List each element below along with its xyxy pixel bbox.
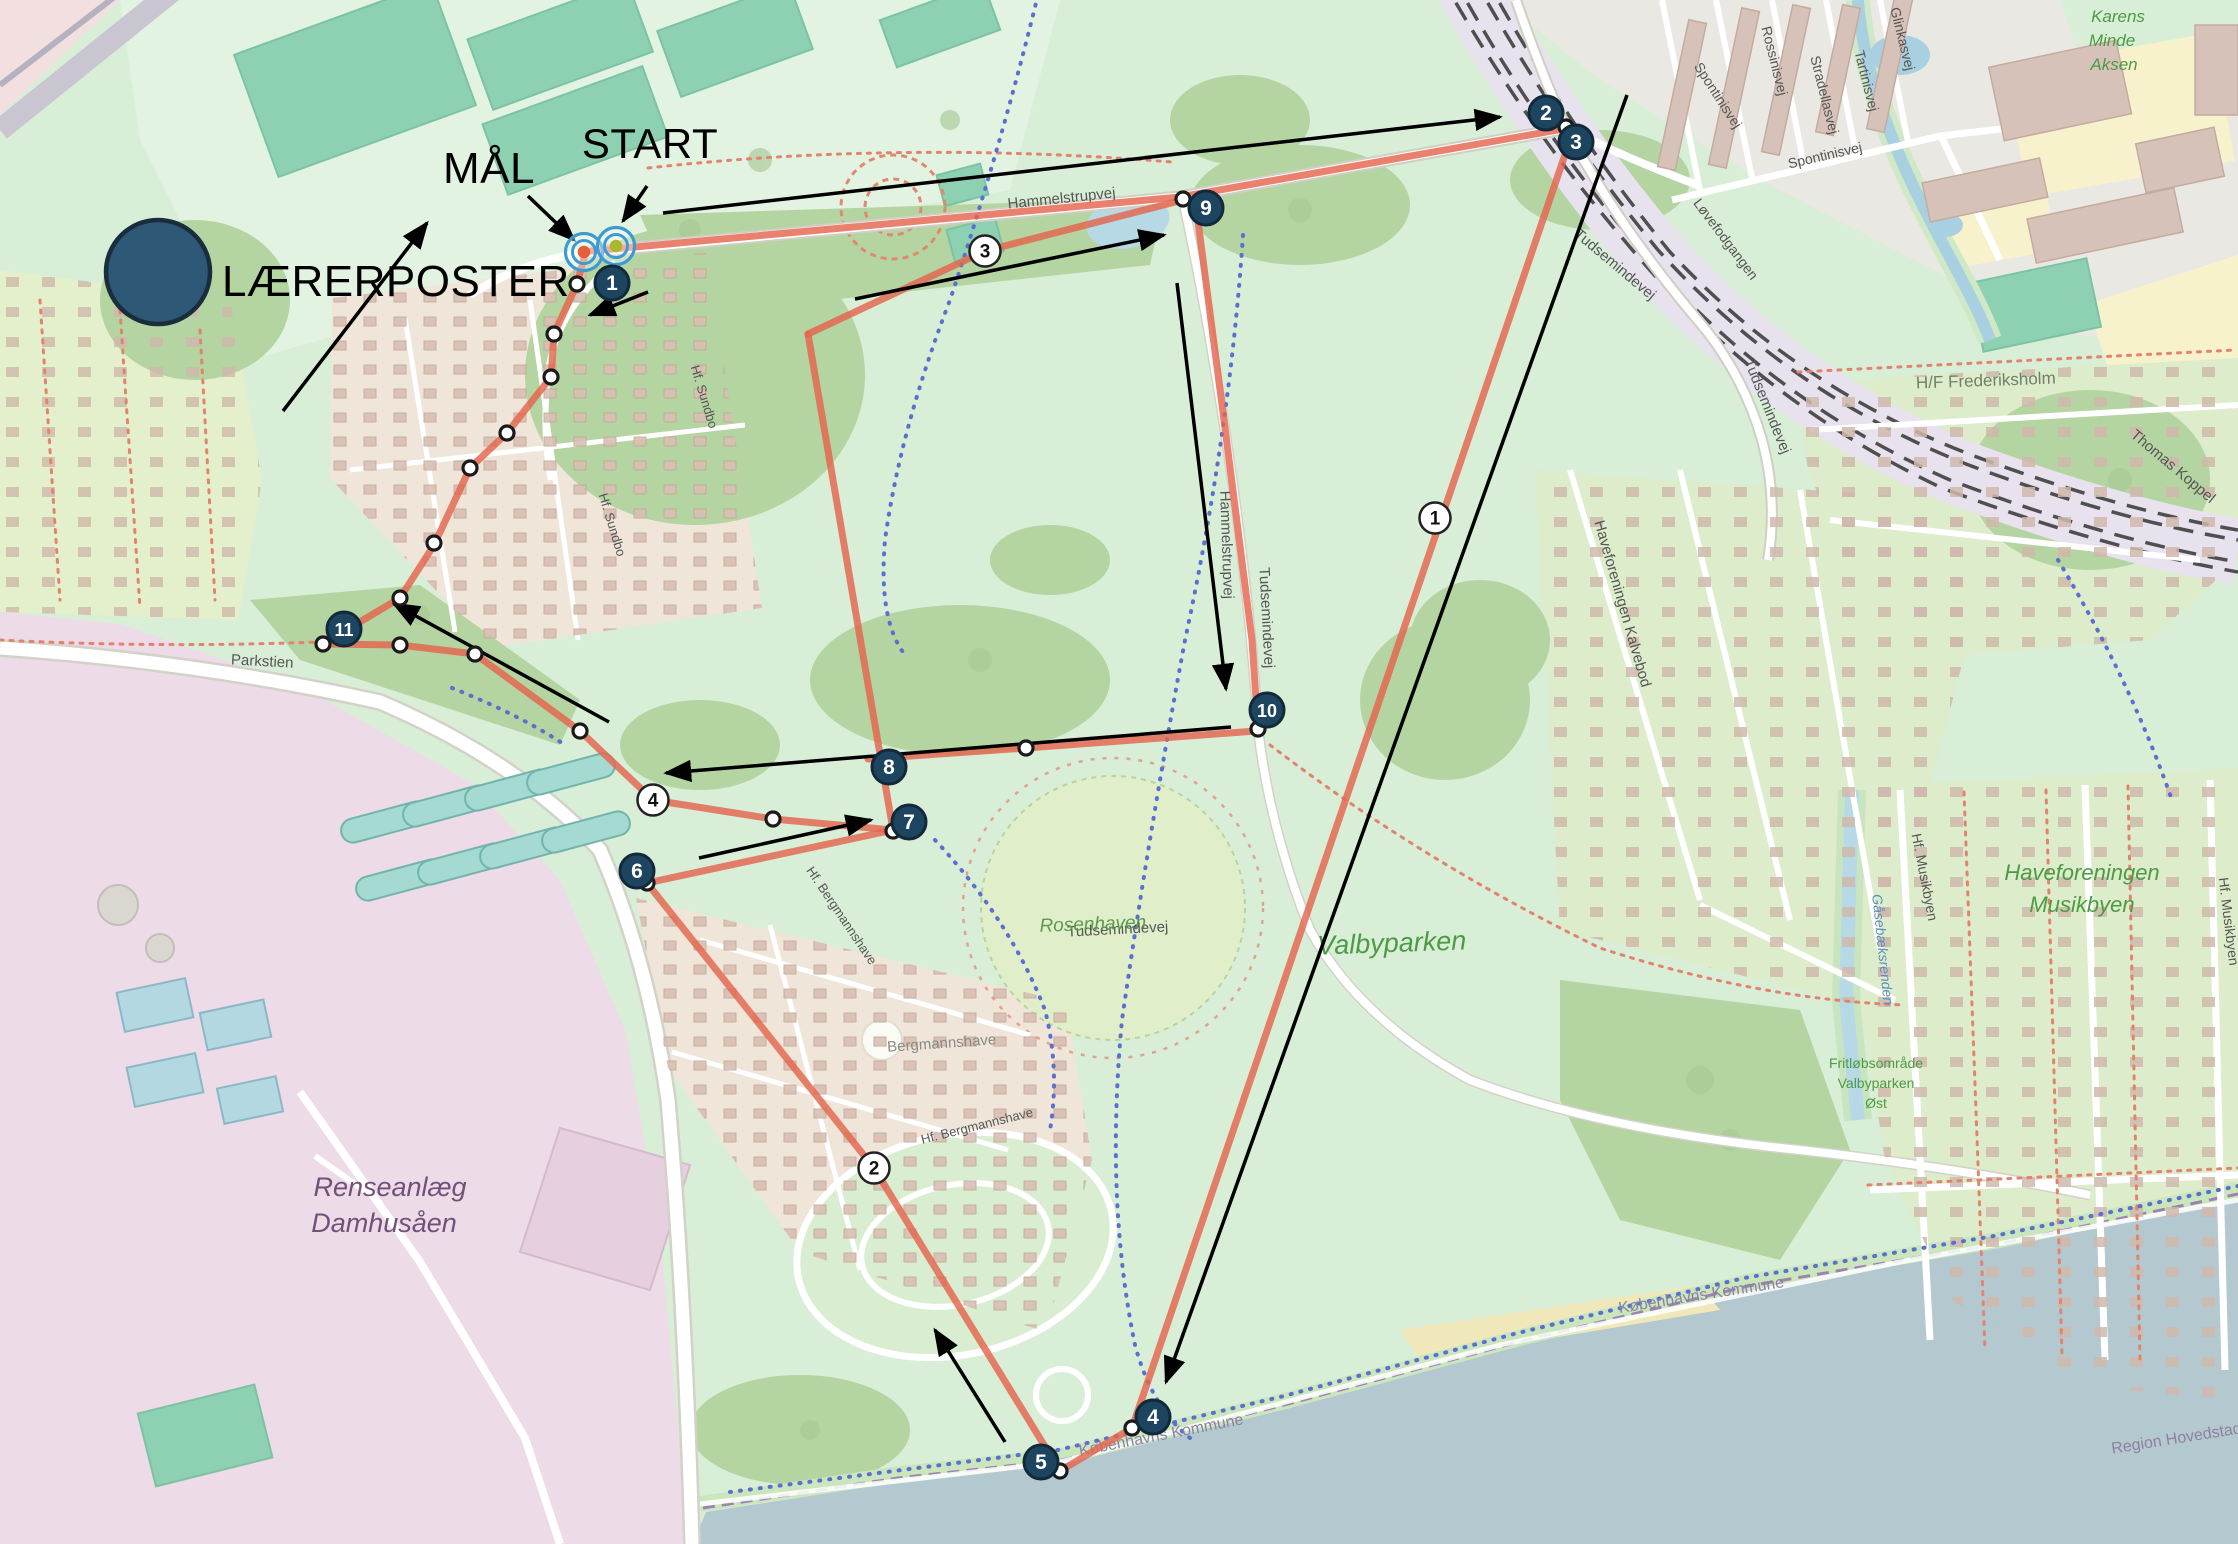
legend-label: LÆRERPOSTER xyxy=(222,257,570,306)
waypoint-dot xyxy=(766,812,780,826)
waypoint-dot xyxy=(544,370,558,384)
map-label: Glinkasvej xyxy=(1887,6,1918,73)
waypoint-dot xyxy=(427,536,441,550)
map-label: Musikbyen xyxy=(2029,892,2134,917)
control-marker: 4 xyxy=(1136,1400,1170,1434)
direction-arrow xyxy=(935,1330,1005,1442)
map-label: Tudsemindevej xyxy=(1571,226,1659,304)
control-marker: 2 xyxy=(1529,96,1563,130)
map-label: Fritløbsområde xyxy=(1829,1055,1923,1071)
map-label: Haveforeningen Kalvebod xyxy=(1590,518,1654,689)
finish-ring-center-dot xyxy=(578,246,591,259)
map-label: Bergmannshave xyxy=(887,1031,997,1056)
route-leg xyxy=(647,883,1060,1471)
control-marker: 6 xyxy=(620,854,654,888)
control-number: 7 xyxy=(903,811,915,834)
control-number: 5 xyxy=(1035,1451,1047,1474)
waypoint-dot xyxy=(500,426,514,440)
direction-arrow xyxy=(1177,283,1226,689)
waypoint-dot xyxy=(463,461,477,475)
map-label: Hf. Sundbo xyxy=(596,491,629,558)
route-badge-number: 3 xyxy=(980,242,991,263)
waypoint-dot xyxy=(316,637,330,651)
route-badge: 2 xyxy=(859,1153,890,1184)
map-label: Stradellasvej xyxy=(1807,54,1842,136)
control-number: 9 xyxy=(1200,197,1212,220)
control-number: 2 xyxy=(1540,102,1552,125)
control-number: 10 xyxy=(1257,701,1277,721)
route-badge: 4 xyxy=(638,785,669,816)
map-label: Spontinisvej xyxy=(1786,139,1863,172)
map-label: Hf. Sundbo xyxy=(688,363,721,430)
control-marker: 8 xyxy=(872,750,906,784)
map-label: Valbyparken xyxy=(1317,925,1467,960)
route-leg xyxy=(1196,206,1258,729)
map-label: Hf. Bergmannshave xyxy=(919,1104,1034,1146)
map-label: Renseanlæg xyxy=(313,1172,466,1202)
route-badge-number: 1 xyxy=(1430,509,1441,530)
map-label: Hf. Bergmannshave xyxy=(803,864,880,968)
route-leg xyxy=(868,731,1256,759)
legend-teacher-post-icon xyxy=(106,220,210,324)
direction-arrow xyxy=(528,196,574,240)
control-marker: 10 xyxy=(1250,693,1284,727)
map-label: Københavns Kommune xyxy=(1617,1274,1785,1317)
direction-arrow xyxy=(1166,95,1627,1382)
start-label: START xyxy=(582,120,718,167)
waypoint-dot xyxy=(468,647,482,661)
control-marker: 11 xyxy=(327,612,361,646)
map-label: Tudsemindevej xyxy=(1740,356,1794,456)
map-viewport[interactable]: HammelstrupvejHammelstrupvejTudsemindeve… xyxy=(0,0,2238,1544)
control-marker: 7 xyxy=(892,805,926,839)
route-badge-number: 4 xyxy=(648,791,659,812)
map-label: Parkstien xyxy=(231,651,294,671)
waypoint-dot xyxy=(570,277,584,291)
route-leg xyxy=(323,644,893,830)
route-badge: 3 xyxy=(970,236,1001,267)
direction-arrow xyxy=(394,604,609,722)
map-label: Minde xyxy=(2089,31,2135,50)
waypoint-dot xyxy=(573,724,587,738)
waypoint-dot xyxy=(1019,741,1033,755)
map-label: Haveforeningen xyxy=(2004,860,2159,885)
legend: LÆRERPOSTER xyxy=(106,220,570,324)
map-label: Spontinisvej xyxy=(1691,59,1746,131)
map-label: Øst xyxy=(1865,1095,1887,1111)
map-label: Hf. Musikbyen xyxy=(2216,876,2238,966)
route-leg xyxy=(647,830,893,883)
control-number: 3 xyxy=(1570,131,1582,154)
finish-label: MÅL xyxy=(443,144,535,193)
route-leg xyxy=(808,200,1183,334)
map-label: Aksen xyxy=(2089,55,2137,74)
route-badge-number: 2 xyxy=(869,1159,880,1180)
control-marker: 5 xyxy=(1024,1445,1058,1479)
control-marker: 3 xyxy=(1559,125,1593,159)
start-ring xyxy=(598,228,635,265)
route-badge: 1 xyxy=(1420,503,1451,534)
map-label: Region Hovedstaden xyxy=(2110,1417,2238,1457)
course-overlay: HammelstrupvejHammelstrupvejTudsemindeve… xyxy=(0,0,2238,1544)
waypoint-dot xyxy=(1176,192,1190,206)
control-number: 4 xyxy=(1147,1406,1159,1429)
map-label: Tudsemindevej xyxy=(1255,567,1277,669)
map-label: Thomas Koppel xyxy=(2127,426,2218,507)
waypoint-dot xyxy=(547,327,561,341)
map-label: Karens xyxy=(2091,7,2145,26)
map-label: Rosenhaven xyxy=(1039,912,1146,937)
direction-arrow xyxy=(623,186,647,221)
map-label: Damhusåen xyxy=(311,1208,457,1238)
direction-arrow xyxy=(283,223,427,411)
map-label: Gåsebæksrenden xyxy=(1869,893,1897,1006)
map-label: Rossinisvej xyxy=(1759,25,1792,98)
direction-arrow xyxy=(666,727,1231,773)
map-label: Tartinisvej xyxy=(1852,49,1883,113)
route-leg xyxy=(323,258,584,644)
control-number: 6 xyxy=(631,860,643,883)
map-label: Valbyparken xyxy=(1838,1075,1915,1091)
control-marker: 9 xyxy=(1189,191,1223,225)
map-label: Løvefodgangen xyxy=(1690,195,1761,282)
control-number: 1 xyxy=(606,272,618,295)
control-marker: 1 xyxy=(595,266,629,300)
start-ring-center-dot xyxy=(610,240,623,253)
waypoint-dot xyxy=(393,591,407,605)
control-number: 11 xyxy=(334,620,353,640)
control-number: 8 xyxy=(883,756,895,779)
waypoint-dot xyxy=(393,638,407,652)
map-label: H/F Frederiksholm xyxy=(1916,369,2056,393)
map-label: Hf. Musikbyen xyxy=(1909,832,1942,922)
route-leg xyxy=(1132,140,1570,1428)
